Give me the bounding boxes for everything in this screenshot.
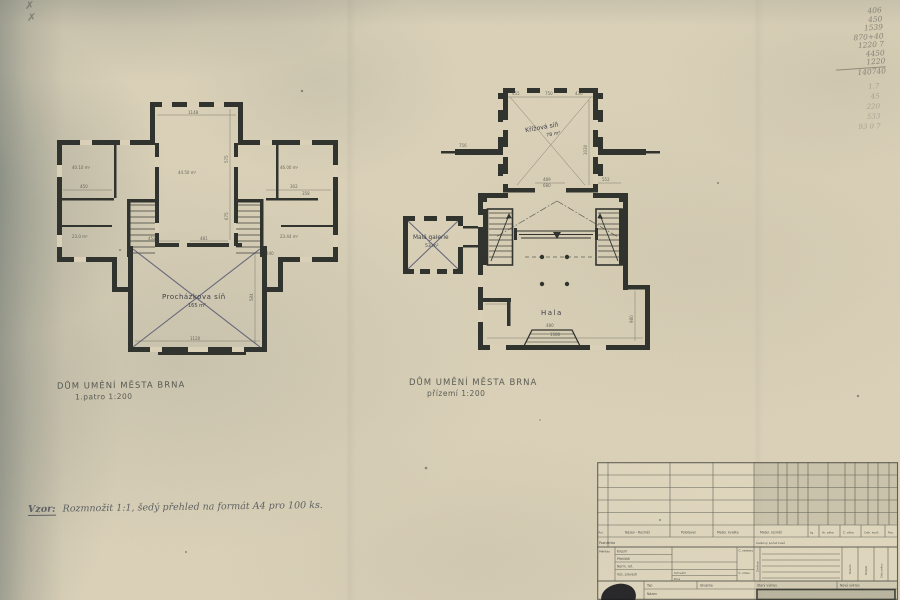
- header-kg: kg: [810, 531, 814, 535]
- field-c-zmen: Č. zmen.: [739, 570, 751, 575]
- room-area-label: 44.50 m²: [178, 170, 197, 175]
- stain-overlay: [754, 462, 898, 525]
- dimension-label: 575: [224, 155, 229, 163]
- dimension-label: 1030: [583, 144, 588, 155]
- room-area: 53 m²: [425, 243, 439, 249]
- dimension-label: 450: [80, 184, 88, 189]
- room-area: 165 m²: [188, 303, 206, 309]
- field-norm-ref: Norm. ref.: [617, 565, 633, 569]
- field-skupina: Skupina: [700, 584, 713, 588]
- dimension-label: 1580: [550, 332, 561, 337]
- header-poz: Poz.: [888, 531, 894, 535]
- header-hr-vaha: Hr. váha: [822, 531, 834, 535]
- header-mater-kvalita: Mater. kvalita: [717, 531, 739, 535]
- pencil-mark: ✗: [25, 0, 34, 11]
- dimension-label: 452: [148, 236, 156, 241]
- pencil-calculations: 406 450 1539 870+40 1220 7 4450 1220 140…: [832, 6, 887, 78]
- step-post: [514, 228, 517, 240]
- plan-left-title: DŮM UMĚNÍ MĚSTA BRNA: [57, 380, 185, 391]
- dimension-label: 480: [546, 323, 554, 328]
- dimension-label: 750: [545, 91, 553, 96]
- col-cislo-zmeny: Číslo změny: [881, 563, 884, 578]
- field-novy-vykres: Nový výkres: [840, 584, 860, 588]
- field-vys-provedl: Výs. provedl: [617, 573, 637, 577]
- step-post: [595, 228, 598, 240]
- room-area-label: 46.00 m²: [280, 165, 299, 170]
- hall-columns: [540, 255, 569, 286]
- col-datum: Datum: [848, 564, 852, 574]
- dimension-label: 1120: [190, 336, 201, 341]
- header-nazev-rozmer: Název - Rozměr: [625, 531, 651, 535]
- calc-line: 93 0 7: [841, 121, 881, 132]
- field-schvalil: Schválil: [674, 571, 686, 575]
- plan-left-caption: DŮM UMĚNÍ MĚSTA BRNA 1.patro 1:200: [57, 380, 186, 401]
- field-meritko: Měřítko: [599, 550, 610, 554]
- note-text: Rozmnožit 1:1, šedý přehled na formát A4…: [63, 500, 323, 515]
- field-poznamka: Poznámka: [599, 541, 615, 545]
- pencil-mark: ✗: [27, 12, 36, 23]
- dimension-label: 240: [266, 251, 274, 256]
- field-celkovy-pocet: Celkový počet kusů: [756, 541, 785, 545]
- dimension-label: 567: [490, 298, 498, 303]
- dimension-label: 756: [459, 143, 467, 148]
- field-typ: Typ: [646, 584, 652, 588]
- field-c-sestavy: Č. sestavy: [739, 548, 754, 553]
- room-name-mala-galerie: Malá galerie: [413, 234, 449, 241]
- dimension-label: 455: [512, 91, 520, 96]
- pencil-calculations-faint: 1.7 45 220 533 93 0 7: [839, 81, 881, 132]
- col-podpis: Podpis: [864, 565, 868, 575]
- field-zmena: Změna: [756, 561, 760, 572]
- dimension-label: 358: [302, 191, 310, 196]
- field-nazev: Název: [647, 592, 657, 596]
- floor-plan-ground-floor: 750 455 436 1030 489 552 680 567 980 158…: [395, 85, 665, 380]
- scanned-drawing-page: ✗ ✗ 406 450 1539 870+40 1220 7 4450 1220…: [0, 0, 900, 600]
- room-name-hala: Hala: [541, 309, 563, 317]
- plan-right-subtitle: přízemí 1:200: [427, 389, 537, 398]
- header-polotovar: Polotovar: [681, 531, 697, 535]
- dimension-label: 584: [249, 293, 254, 301]
- dimension-label: 481: [200, 236, 208, 241]
- room-area-label: 23.44 m²: [280, 234, 299, 239]
- room-area-label: 40.10 m²: [72, 165, 91, 170]
- dimension-label: 552: [602, 177, 610, 182]
- field-prehledl: Přehlédl: [617, 557, 630, 561]
- plan-right-caption: DŮM UMĚNÍ MĚSTA BRNA přízemí 1:200: [409, 378, 537, 398]
- header-celk-kusu: Celk. kusů: [864, 531, 879, 535]
- dimension-label: 489: [543, 177, 551, 182]
- drawing-number-box-fill: [757, 590, 895, 600]
- header-mater-rozmer: Mater. rozměr: [760, 531, 783, 535]
- field-dne: Dne: [674, 577, 680, 581]
- dimension-label: 675: [224, 212, 229, 220]
- floor-plan-first-floor: 1148 575 675 44.50 m² 40.10 m² 23.0 m² 4…: [50, 95, 345, 360]
- dimension-label: 1148: [188, 110, 199, 115]
- note-lead-word: Vzor:: [28, 504, 56, 516]
- plan-right-title: DŮM UMĚNÍ MĚSTA BRNA: [409, 378, 537, 388]
- room-name-prochazkova-sin: Procházkova síň: [162, 293, 226, 301]
- dimension-label: 302: [290, 184, 298, 189]
- plan-walls: [57, 102, 338, 355]
- title-block-table: Pol. Název - Rozměr Polotovar Mater. kva…: [597, 462, 899, 600]
- handwritten-note: Vzor:Rozmnožit 1:1, šedý přehled na form…: [28, 500, 323, 515]
- room-area-label: 23.0 m²: [72, 234, 88, 239]
- dimension-label: 436: [575, 91, 583, 96]
- header-pol: Pol.: [599, 531, 604, 535]
- field-kreslil: Kreslil: [617, 550, 627, 554]
- room-area: 78 m²: [546, 130, 561, 138]
- plan-left-subtitle: 1.patro 1:200: [75, 391, 185, 401]
- field-stary-vykres: Starý výkres: [757, 584, 777, 588]
- stair-direction-arrows: [506, 213, 603, 219]
- dimension-label: 680: [543, 183, 551, 188]
- header-c-vaha: Č. váha: [843, 530, 854, 535]
- calc-total-line: 140740: [836, 66, 887, 79]
- dimension-label: 980: [629, 315, 634, 323]
